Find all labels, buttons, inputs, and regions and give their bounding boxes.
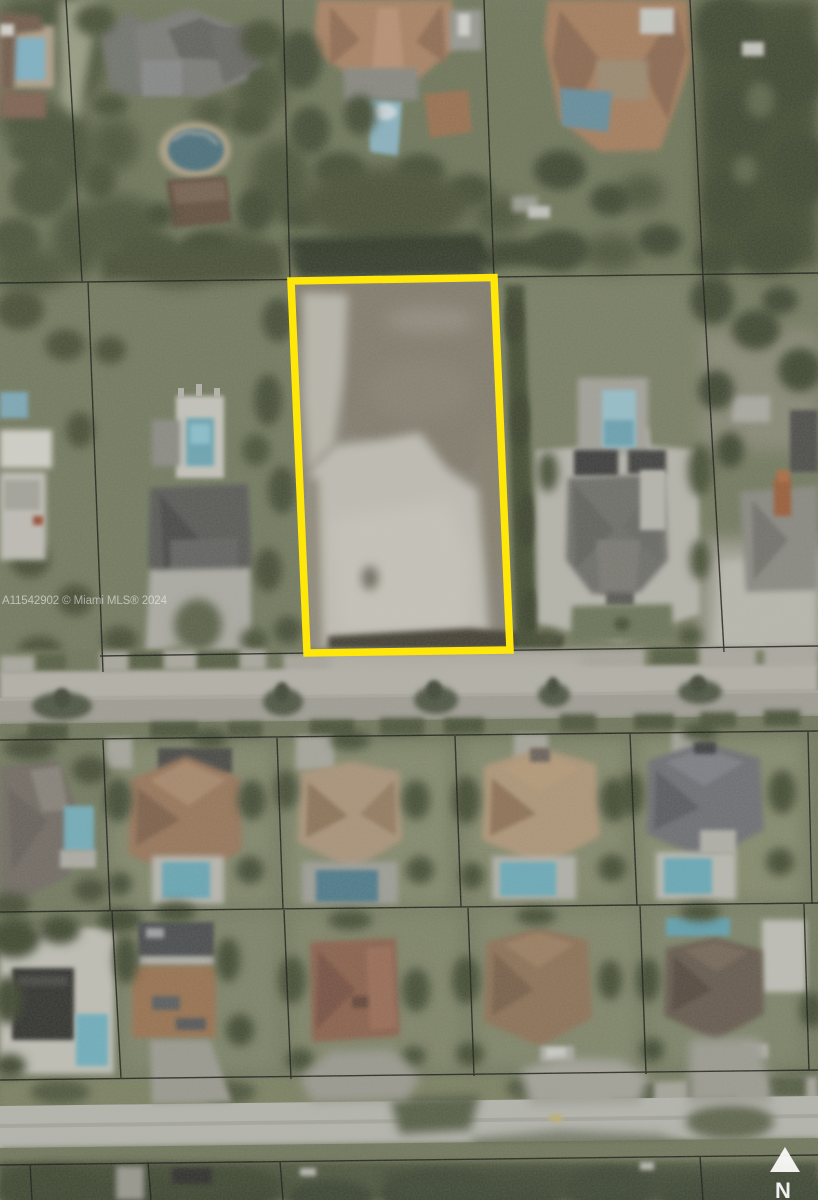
svg-text:A11542902 © Miami MLS® 2024: A11542902 © Miami MLS® 2024 <box>2 595 168 607</box>
svg-text:N: N <box>775 1178 791 1200</box>
